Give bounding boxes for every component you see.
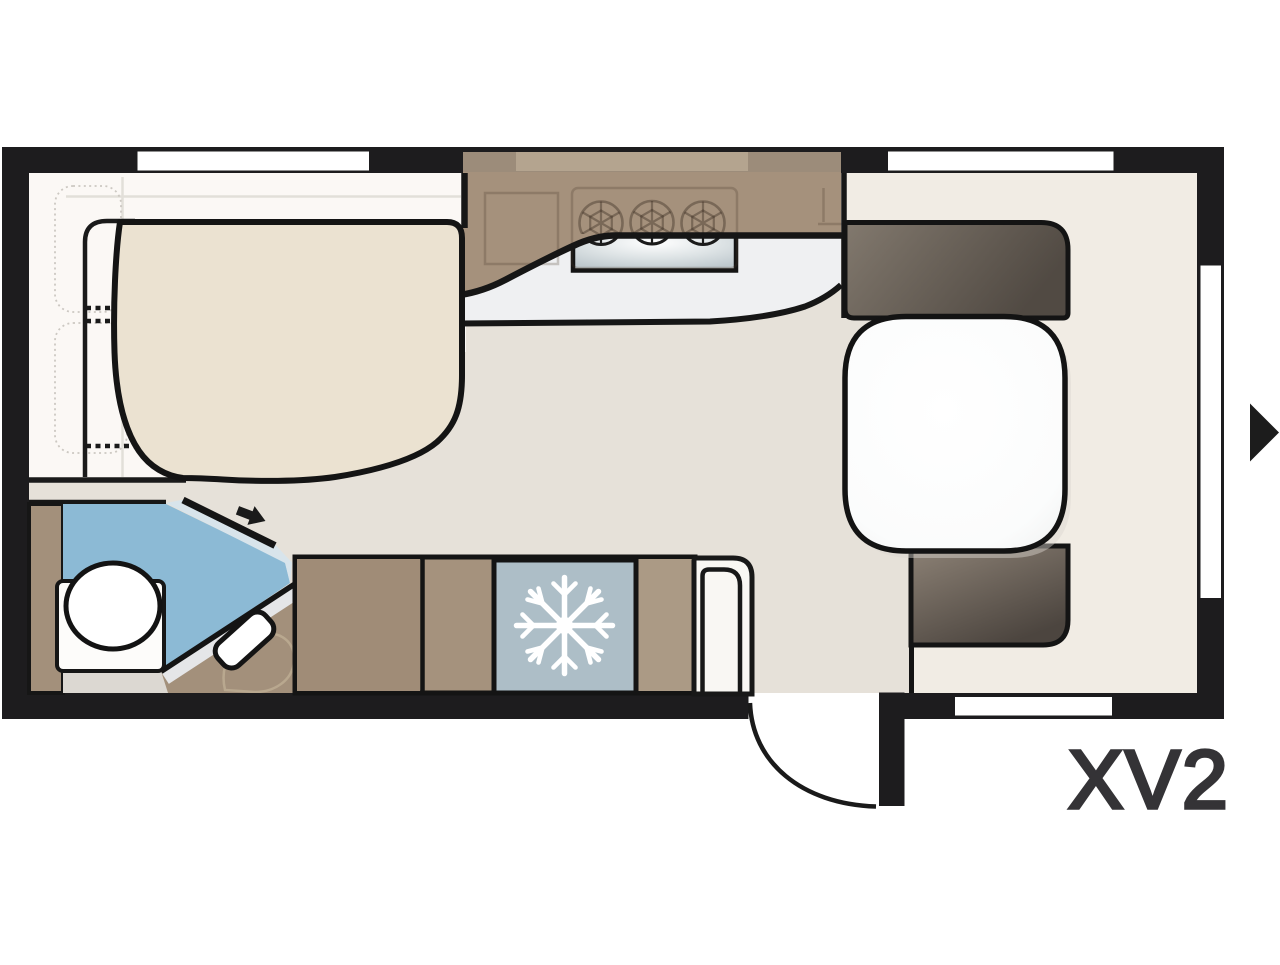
svg-text:XV2: XV2 <box>1068 733 1229 826</box>
